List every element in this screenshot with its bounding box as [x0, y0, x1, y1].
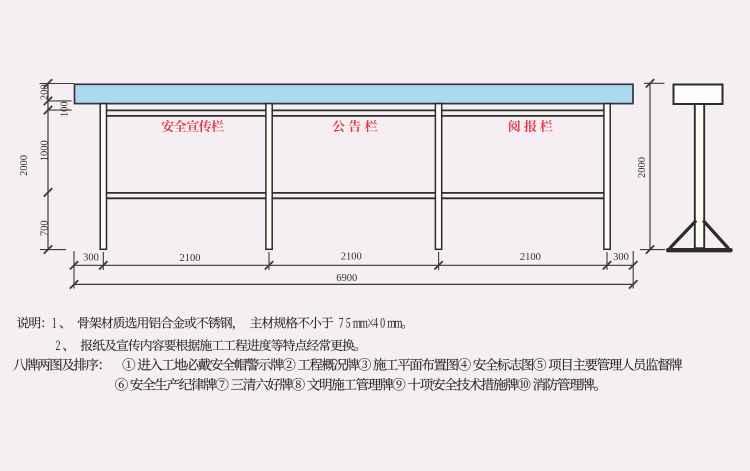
svg-text:300: 300	[613, 252, 629, 263]
svg-text:2100: 2100	[180, 253, 201, 264]
svg-text:2100: 2100	[341, 252, 362, 263]
svg-text:100: 100	[59, 101, 70, 117]
svg-text:300: 300	[83, 253, 99, 264]
svg-text:6900: 6900	[336, 273, 357, 284]
svg-text:2100: 2100	[520, 252, 541, 263]
svg-text:700: 700	[39, 220, 50, 236]
svg-text:1000: 1000	[39, 140, 50, 161]
svg-text:2000: 2000	[19, 155, 30, 176]
svg-text:200: 200	[39, 84, 50, 100]
svg-text:2000: 2000	[637, 157, 648, 178]
